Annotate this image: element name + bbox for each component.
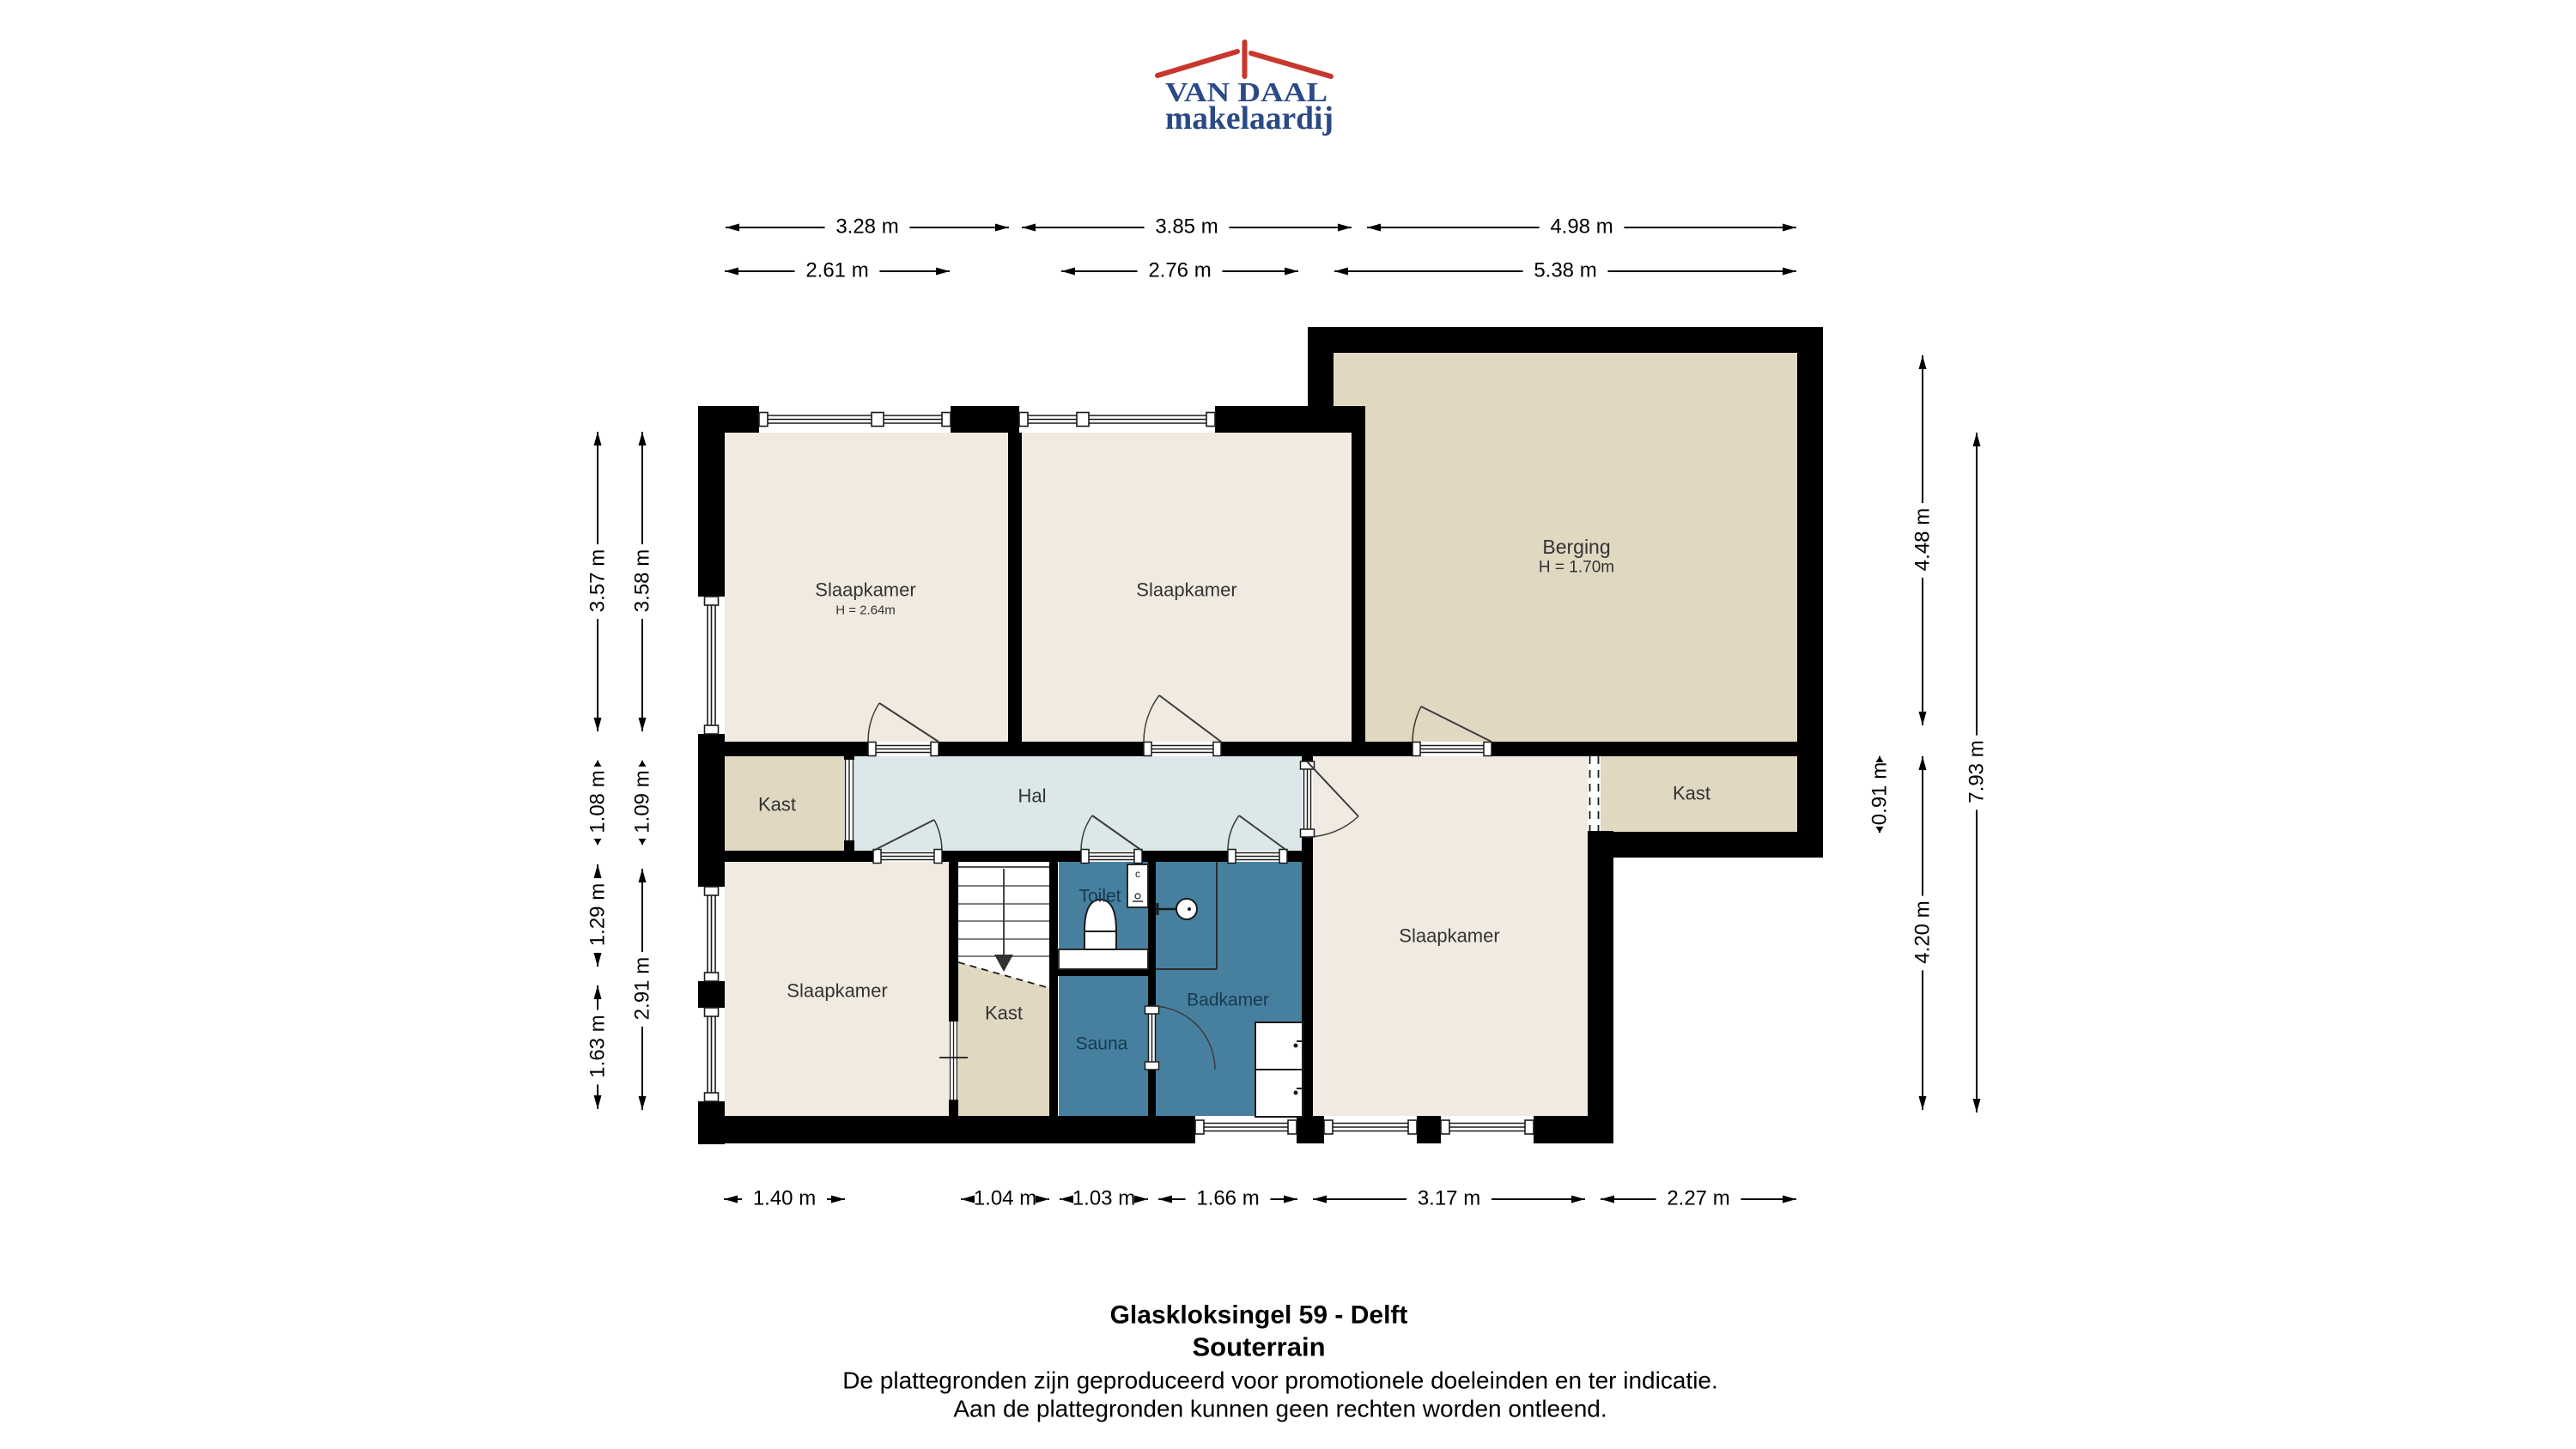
svg-text:Kast: Kast xyxy=(758,794,796,815)
svg-text:Berging: Berging xyxy=(1542,536,1610,558)
svg-text:3.17 m: 3.17 m xyxy=(1418,1187,1480,1210)
svg-text:Kast: Kast xyxy=(985,1003,1023,1024)
svg-text:3.28 m: 3.28 m xyxy=(835,215,898,239)
svg-text:Sauna: Sauna xyxy=(1076,1034,1128,1054)
svg-text:1.04 m: 1.04 m xyxy=(974,1187,1036,1210)
svg-text:5.38 m: 5.38 m xyxy=(1534,259,1596,282)
svg-text:2.61 m: 2.61 m xyxy=(805,259,868,282)
svg-text:1.09 m: 1.09 m xyxy=(631,770,654,833)
svg-text:Hal: Hal xyxy=(1018,785,1046,807)
svg-text:1.29 m: 1.29 m xyxy=(586,883,610,946)
svg-text:c: c xyxy=(1135,868,1140,880)
svg-text:H = 1.70m: H = 1.70m xyxy=(1539,559,1614,577)
svg-text:Badkamer: Badkamer xyxy=(1187,991,1269,1010)
svg-text:1.40 m: 1.40 m xyxy=(753,1187,816,1210)
svg-text:Slaapkamer: Slaapkamer xyxy=(815,579,915,601)
svg-text:3.57 m: 3.57 m xyxy=(586,549,610,612)
svg-text:Souterrain: Souterrain xyxy=(1192,1332,1325,1362)
svg-text:1.03 m: 1.03 m xyxy=(1072,1187,1135,1210)
svg-text:1.08 m: 1.08 m xyxy=(586,770,610,833)
svg-text:4.48 m: 4.48 m xyxy=(1911,508,1935,571)
svg-text:Glaskloksingel 59 - Delft: Glaskloksingel 59 - Delft xyxy=(1110,1301,1408,1330)
svg-text:Slaapkamer: Slaapkamer xyxy=(1399,925,1499,947)
svg-text:Toilet: Toilet xyxy=(1078,887,1121,906)
svg-text:0.91 m: 0.91 m xyxy=(1868,762,1892,825)
svg-text:De plattegronden zijn geproduc: De plattegronden zijn geproduceerd voor … xyxy=(842,1367,1718,1394)
svg-text:Slaapkamer: Slaapkamer xyxy=(787,980,887,1002)
svg-text:4.98 m: 4.98 m xyxy=(1550,215,1613,239)
svg-text:1.63 m: 1.63 m xyxy=(586,1015,610,1077)
svg-text:4.20 m: 4.20 m xyxy=(1911,900,1935,963)
svg-text:2.27 m: 2.27 m xyxy=(1667,1187,1729,1210)
svg-text:H = 2.64m: H = 2.64m xyxy=(835,603,896,618)
svg-text:3.58 m: 3.58 m xyxy=(631,549,654,612)
svg-text:3.85 m: 3.85 m xyxy=(1155,215,1218,239)
svg-text:Kast: Kast xyxy=(1673,783,1710,804)
svg-text:Slaapkamer: Slaapkamer xyxy=(1136,579,1236,601)
svg-text:Aan de plattegronden kunnen ge: Aan de plattegronden kunnen geen rechten… xyxy=(953,1396,1607,1422)
svg-text:makelaardij: makelaardij xyxy=(1165,100,1334,136)
svg-text:2.91 m: 2.91 m xyxy=(631,957,654,1020)
svg-text:7.93 m: 7.93 m xyxy=(1965,740,1989,803)
svg-text:1.66 m: 1.66 m xyxy=(1196,1187,1259,1210)
svg-text:2.76 m: 2.76 m xyxy=(1148,259,1211,282)
